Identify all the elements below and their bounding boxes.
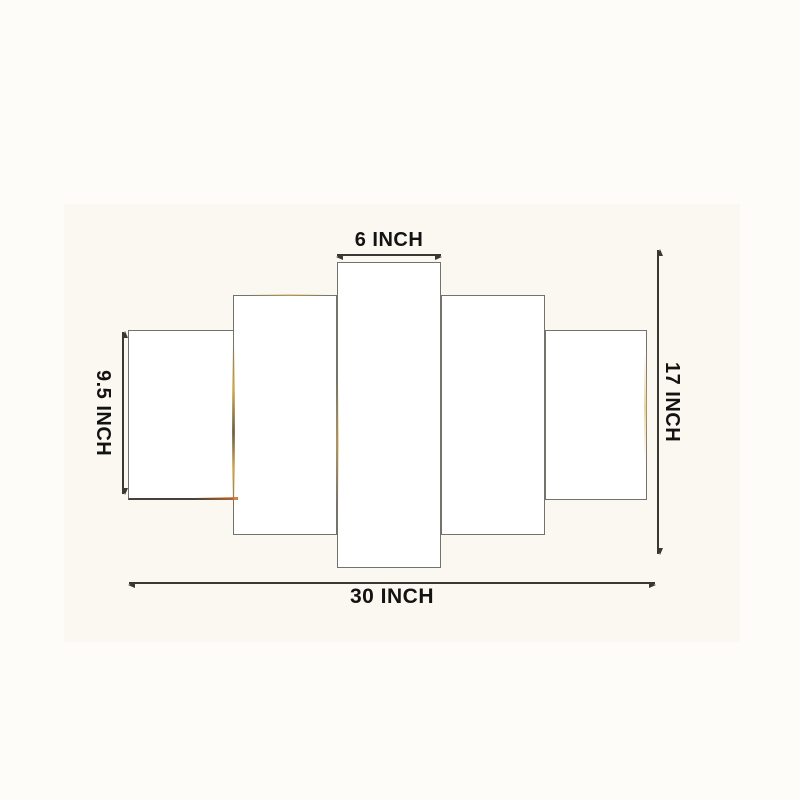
dimension-line-outer-panel-height xyxy=(122,332,124,494)
label-total-width: 30 INCH xyxy=(129,586,655,608)
panel-right-outer xyxy=(545,330,647,500)
label-outer-panel-height: 9.5 INCH xyxy=(90,332,116,494)
panel-right-inner xyxy=(441,295,545,535)
panel-left-inner xyxy=(233,295,337,535)
panel-left-outer xyxy=(128,330,234,500)
label-center-panel-width: 6 INCH xyxy=(337,230,441,250)
dimension-line-total-width xyxy=(129,582,655,584)
label-total-height: 17 INCH xyxy=(659,250,685,554)
product-size-diagram: 6 INCH 9.5 INCH 17 INCH 30 INCH xyxy=(0,0,800,800)
panel-center xyxy=(337,262,441,568)
dimension-line-center-width xyxy=(337,254,441,256)
